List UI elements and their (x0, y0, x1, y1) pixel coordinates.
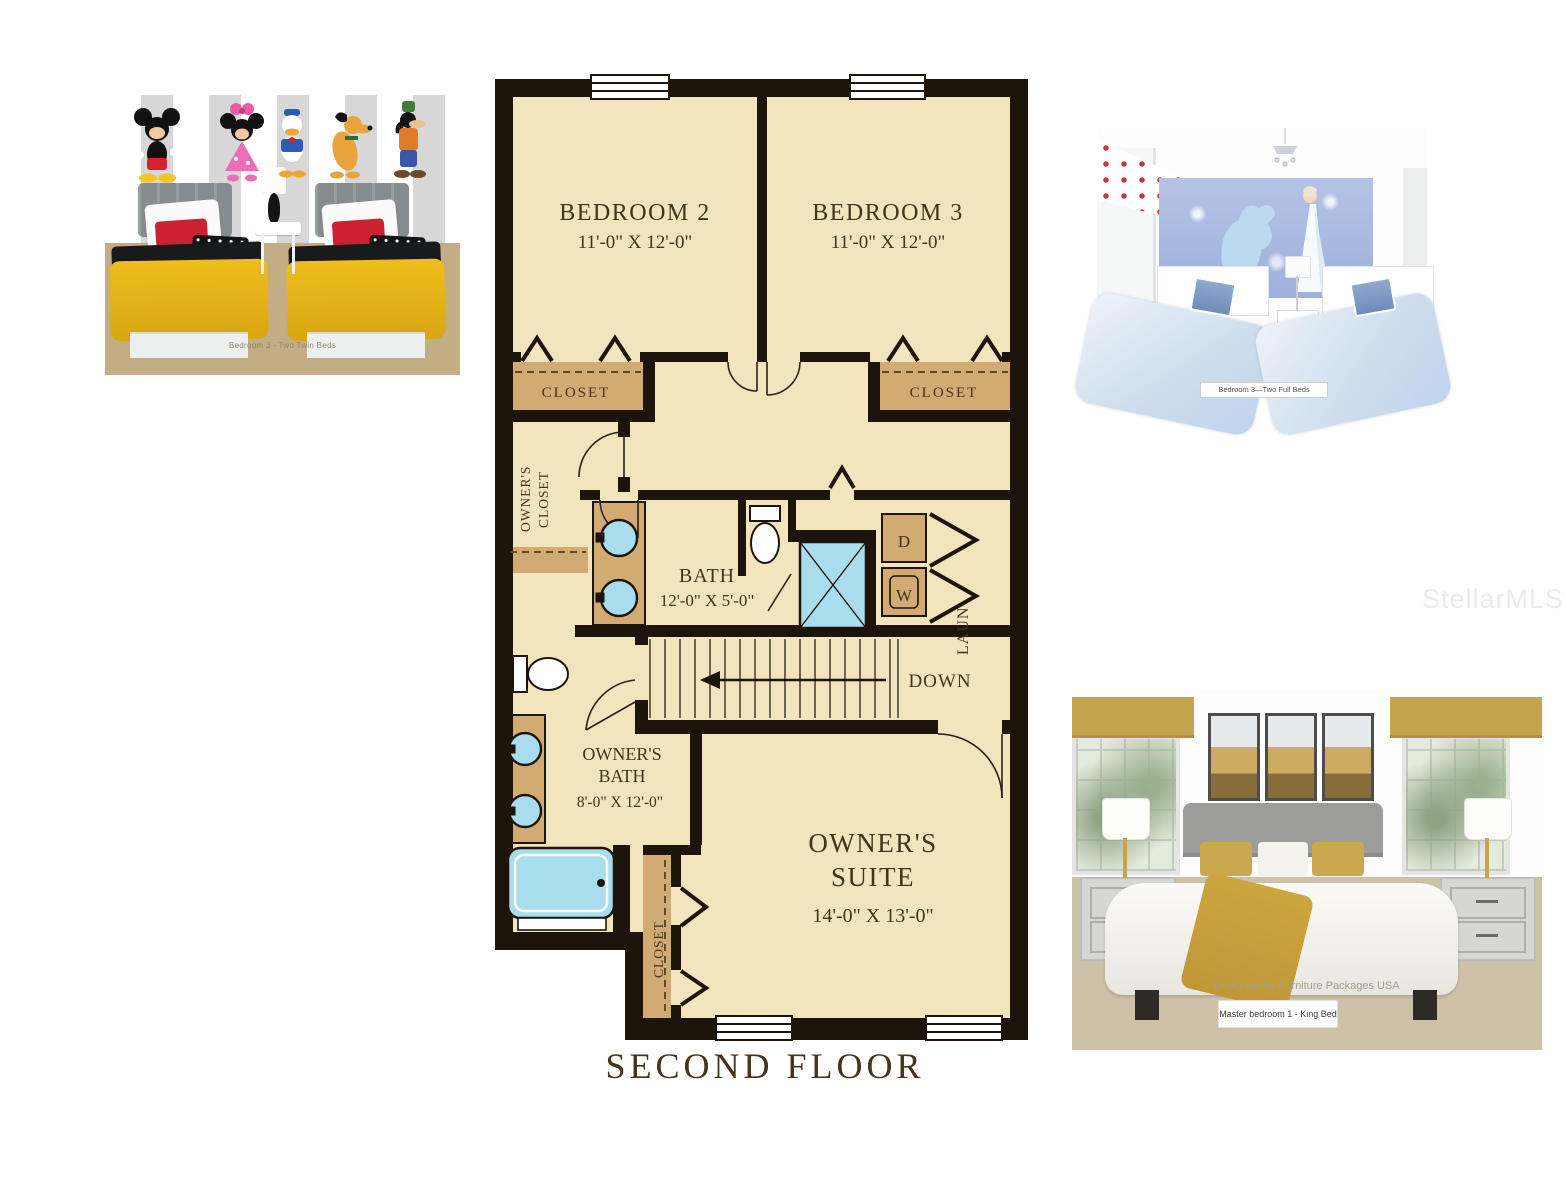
sink (601, 580, 637, 616)
chandelier-icon (1273, 128, 1297, 166)
designer-credit: Designed by Furniture Packages USA (1162, 980, 1452, 992)
photo-caption: Bedroom 3 - Two Twin Beds (105, 341, 460, 350)
lamp-shade (1285, 256, 1311, 278)
closet3-label: CLOSET (910, 385, 979, 401)
white-pillow (1258, 842, 1308, 876)
left-valance (1072, 697, 1194, 738)
suite-closet-label: CLOSET (651, 921, 666, 978)
lamp-shade (1464, 798, 1512, 840)
lamp-stem (1123, 838, 1127, 878)
photo-master-bedroom: Designed by Furniture Packages USA Maste… (1072, 690, 1542, 1050)
bedroom2-label: BEDROOM 2 (559, 200, 711, 226)
donald-figure (279, 109, 306, 178)
goofy-figure (394, 101, 426, 178)
owners-bath-label-1: OWNER'S (582, 744, 661, 764)
toilet-tank (513, 656, 527, 692)
bedroom3-dims: 11'-0" X 12'-0" (831, 232, 946, 253)
lamp-shade (1102, 798, 1150, 840)
washer-label: W (896, 586, 913, 605)
character-pillow (1349, 277, 1396, 318)
toilet-bowl (528, 658, 568, 690)
owners-bath-label-2: BATH (598, 766, 645, 786)
wall-art (1208, 713, 1260, 801)
bedroom3-label: BEDROOM 3 (812, 200, 964, 226)
disney-characters (105, 95, 460, 375)
shower (800, 542, 866, 628)
stellar-mls-watermark: StellarMLS (1422, 584, 1564, 615)
bath-dims: 12'-0" X 5'-0" (660, 591, 755, 610)
gold-pillow (1200, 842, 1252, 876)
toilet-tank (750, 506, 780, 521)
minnie-figure (220, 103, 264, 182)
lamp-stem (1296, 276, 1298, 310)
photo-full-bedroom: Bedroom 3—Two Full Beds (1097, 128, 1427, 398)
owners-closet-label-2: CLOSET (536, 471, 551, 528)
lamp-stem (1485, 838, 1489, 878)
plan-title: SECOND FLOOR (605, 1046, 924, 1086)
bed-leg (1413, 990, 1437, 1020)
owners-suite-label-1: OWNER'S (808, 828, 937, 858)
owners-bath-dims: 8'-0" X 12'-0" (577, 794, 663, 811)
sink (601, 520, 637, 556)
laundry-label: LAUN (955, 607, 972, 655)
toilet-bowl (751, 523, 779, 563)
character-pillow (1189, 277, 1236, 318)
wall-art (1322, 713, 1374, 801)
gold-pillow (1312, 842, 1364, 876)
photo-caption: Master bedroom 1 - King Bed (1218, 1000, 1338, 1028)
owners-suite-label-2: SUITE (831, 862, 915, 892)
dryer-label: D (898, 532, 910, 551)
pluto-figure (329, 112, 373, 178)
down-label: DOWN (908, 671, 971, 692)
bathtub (508, 848, 614, 930)
bedroom2-dims: 11'-0" X 12'-0" (578, 232, 693, 253)
bed-leg (1135, 990, 1159, 1020)
floor-plan: BEDROOM 2 11'-0" X 12'-0" BEDROOM 3 11'-… (488, 70, 1038, 1095)
photo-twin-bedroom: Bedroom 3 - Two Twin Beds (105, 95, 460, 375)
bath-label: BATH (679, 565, 735, 587)
mickey-figure (134, 108, 180, 183)
owners-closet-label-1: OWNER'S (518, 466, 533, 532)
closet2-label: CLOSET (542, 385, 611, 401)
right-valance (1390, 697, 1542, 738)
owners-suite-dims: 14'-0" X 13'-0" (812, 905, 933, 927)
wall-art (1265, 713, 1317, 801)
photo-caption: Bedroom 3—Two Full Beds (1200, 382, 1328, 398)
